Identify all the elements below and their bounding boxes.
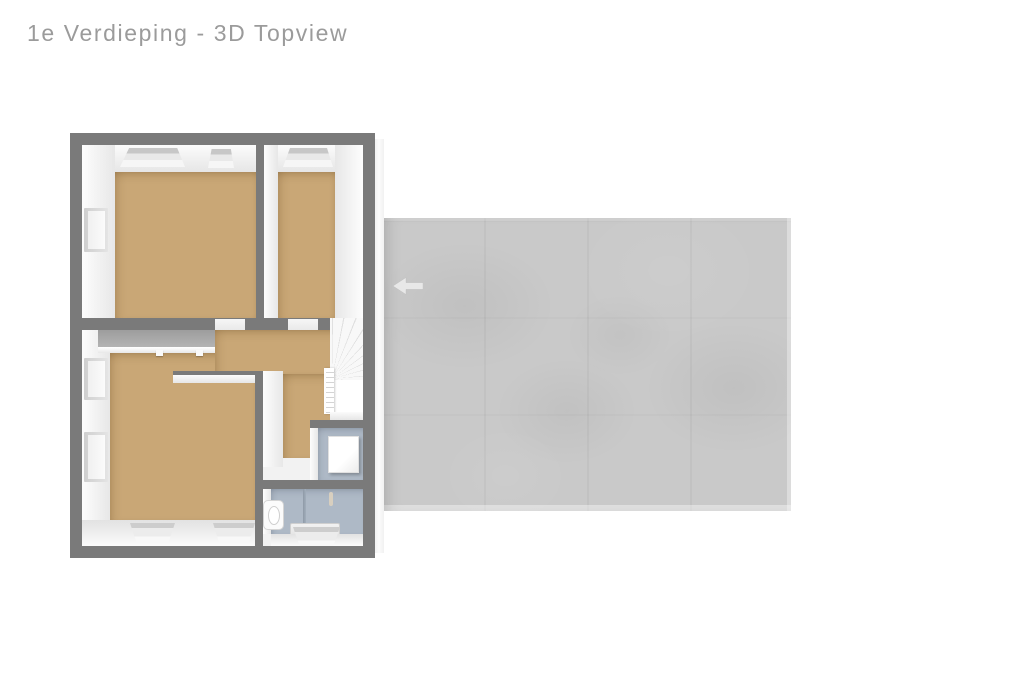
bedroom2-right-wallface <box>335 145 363 318</box>
wall-bathroom-left-core <box>255 467 263 546</box>
door-bedroom1 <box>215 319 245 330</box>
page-title: 1e Verdieping - 3D Topview <box>27 20 348 47</box>
stairs <box>330 318 363 380</box>
wardrobe-bracket-1 <box>156 350 163 356</box>
wall-bathroom-top <box>255 480 363 489</box>
arrow-left-icon <box>393 276 423 296</box>
flat-roof <box>383 218 791 511</box>
window-bottom-1 <box>130 523 175 542</box>
wall-hallway-vertical-face <box>263 371 283 467</box>
window-top-2 <box>208 149 234 168</box>
shower-tap <box>329 492 333 506</box>
hallway-floor-top <box>215 330 335 374</box>
window-left-2 <box>84 358 108 400</box>
floorplan <box>70 133 375 558</box>
boiler-unit <box>328 436 359 473</box>
screenshot-root: 1e Verdieping - 3D Topview <box>0 0 1024 683</box>
wall-hallway-horizontal-face <box>173 375 263 383</box>
door-bedroom2 <box>288 319 318 330</box>
wardrobe-bracket-2 <box>196 350 203 356</box>
window-top-1 <box>120 148 185 167</box>
bedroom2-floor <box>278 172 335 318</box>
bedroom2-left-wallface <box>264 145 278 318</box>
window-bottom-2 <box>213 523 255 542</box>
stair-void <box>332 380 363 412</box>
shower-divider-wall <box>303 489 306 523</box>
bedroom1-floor <box>115 172 257 318</box>
stair-railing <box>324 368 334 414</box>
wardrobe-top <box>98 330 215 347</box>
wall-bedroom1-bedroom2 <box>256 145 264 330</box>
stairwell-ledge <box>330 412 363 420</box>
floorplan-interior <box>82 145 363 546</box>
window-left-1 <box>84 208 108 252</box>
wall-closet-top <box>310 420 363 428</box>
closet-left-wallface <box>310 428 318 480</box>
window-top-3 <box>283 148 333 167</box>
window-left-3 <box>84 432 108 482</box>
wall-hallway-vertical-core <box>255 371 263 481</box>
toilet <box>263 500 284 530</box>
window-bottom-3 <box>293 527 340 546</box>
